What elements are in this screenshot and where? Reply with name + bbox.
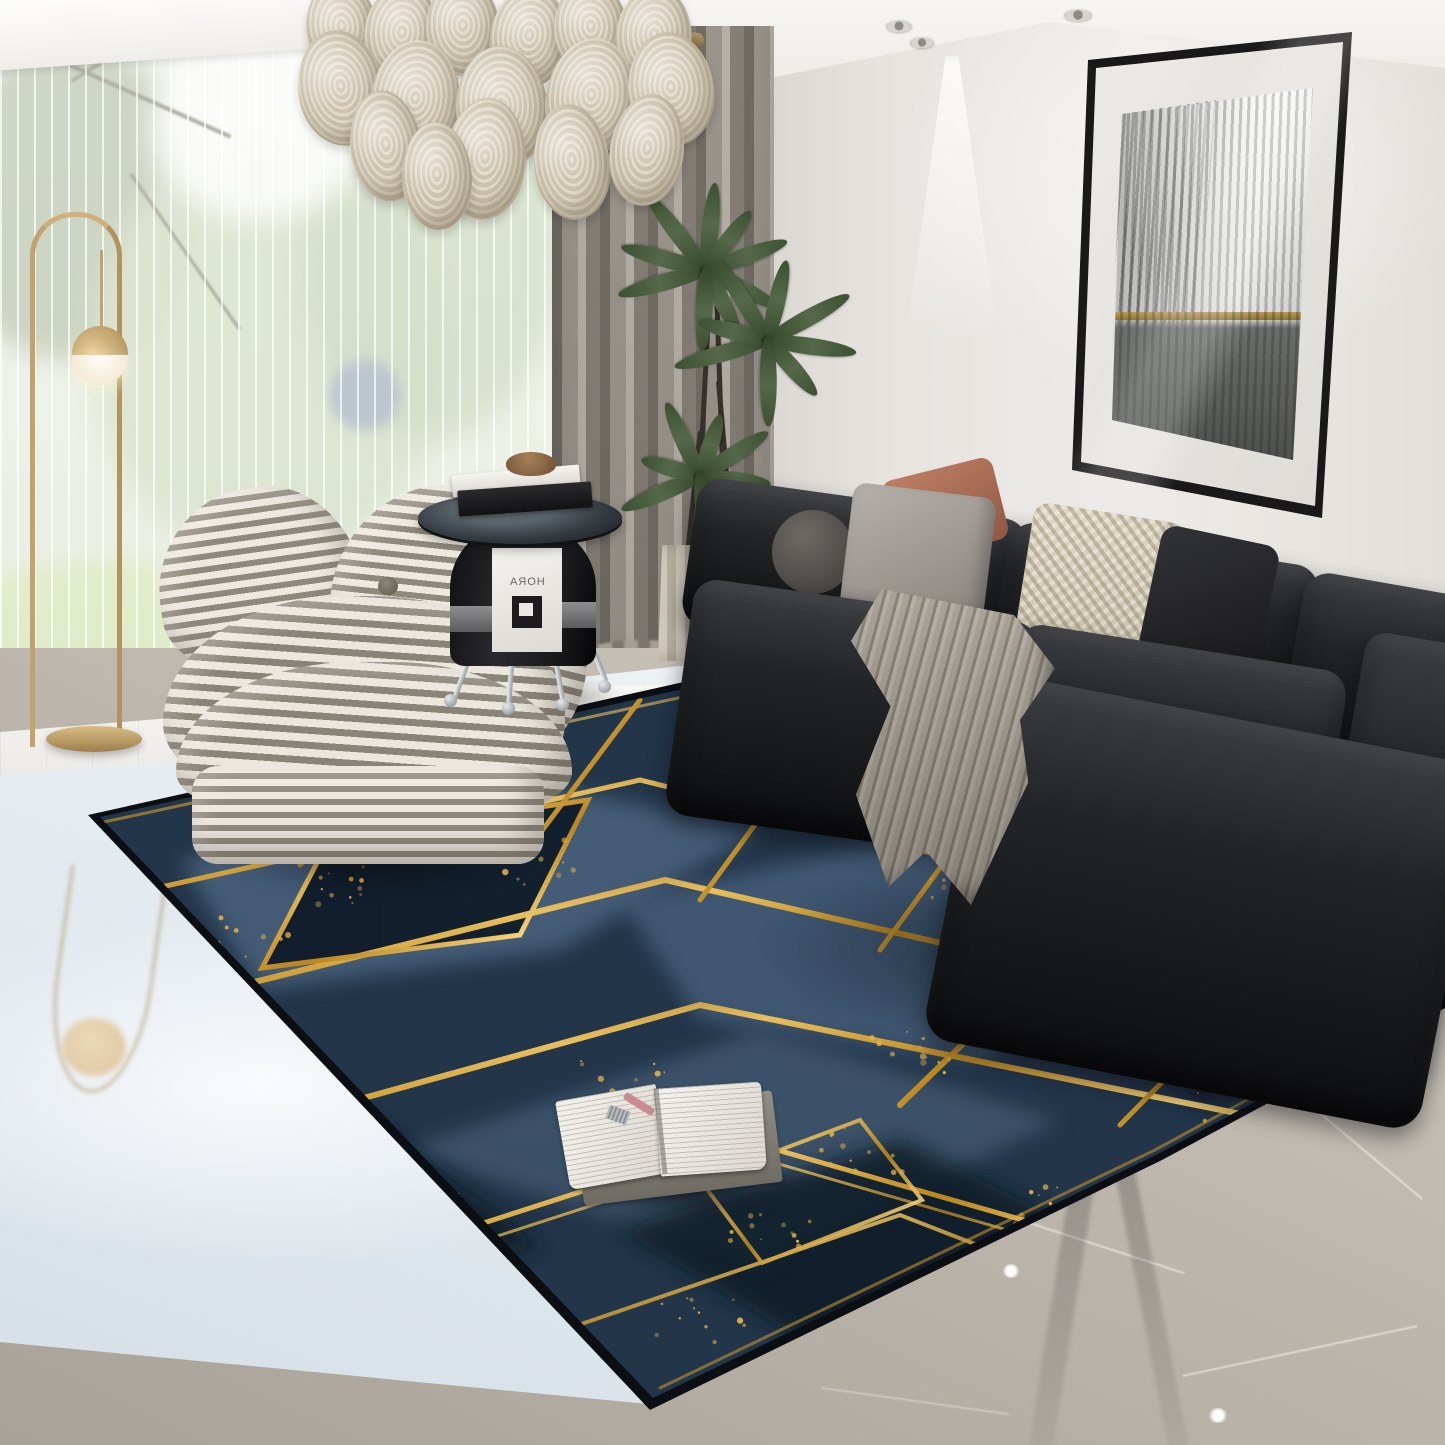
living-room-scene: HORA <box>0 0 1445 1445</box>
poster-graphic <box>512 596 542 628</box>
table-caster <box>444 694 457 707</box>
table-metal-band <box>450 606 494 632</box>
table-poster: HORA <box>492 548 562 652</box>
table-caster <box>502 702 515 715</box>
open-book-right-page <box>655 1081 767 1176</box>
chandelier-discs <box>298 0 736 244</box>
table-caster <box>556 698 569 711</box>
table-caster <box>598 680 611 693</box>
open-book-left-page <box>555 1084 671 1190</box>
table-metal-band <box>556 602 596 628</box>
wooden-bowl <box>506 452 556 476</box>
chair-base <box>192 766 544 864</box>
chandelier <box>298 0 736 244</box>
chair-tuft-button <box>378 577 398 595</box>
poster-text: HORA <box>509 576 545 588</box>
